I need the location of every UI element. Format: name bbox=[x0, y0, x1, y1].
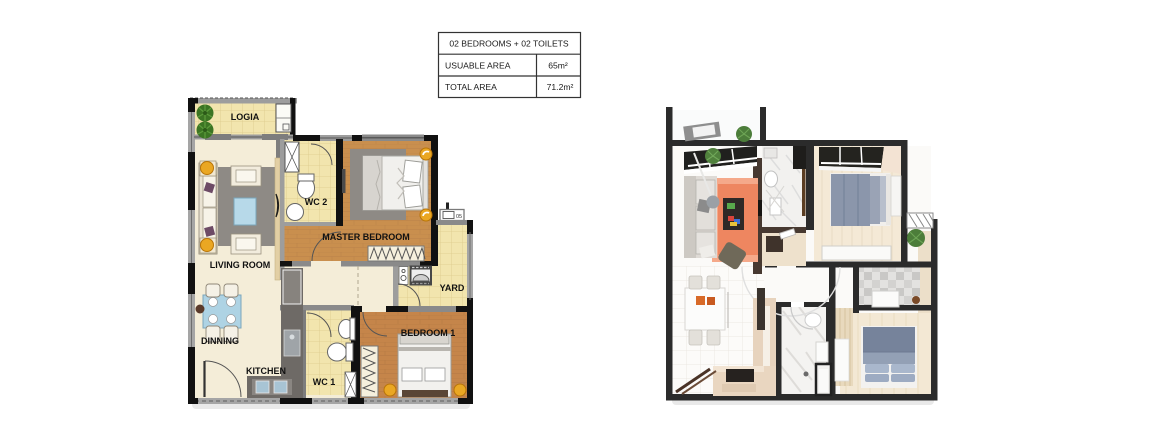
svg-text:02 BEDROOMS + 02 TOILETS: 02 BEDROOMS + 02 TOILETS bbox=[449, 39, 569, 49]
svg-text:DINNING: DINNING bbox=[201, 336, 239, 346]
svg-text:71.2m²: 71.2m² bbox=[547, 82, 574, 92]
svg-text:LOGIA: LOGIA bbox=[231, 112, 260, 122]
svg-text:05: 05 bbox=[456, 214, 462, 220]
svg-text:MASTER BEDROOM: MASTER BEDROOM bbox=[322, 232, 410, 242]
svg-text:USUABLE AREA: USUABLE AREA bbox=[445, 60, 511, 70]
svg-text:TOTAL AREA: TOTAL AREA bbox=[445, 82, 497, 92]
svg-text:BEDROOM 1: BEDROOM 1 bbox=[401, 328, 456, 338]
svg-text:KITCHEN: KITCHEN bbox=[246, 366, 286, 376]
svg-text:LIVING ROOM: LIVING ROOM bbox=[210, 260, 271, 270]
svg-text:WC 2: WC 2 bbox=[305, 197, 328, 207]
svg-text:WC 1: WC 1 bbox=[313, 377, 336, 387]
svg-text:65m²: 65m² bbox=[548, 60, 568, 70]
svg-text:YARD: YARD bbox=[440, 283, 465, 293]
